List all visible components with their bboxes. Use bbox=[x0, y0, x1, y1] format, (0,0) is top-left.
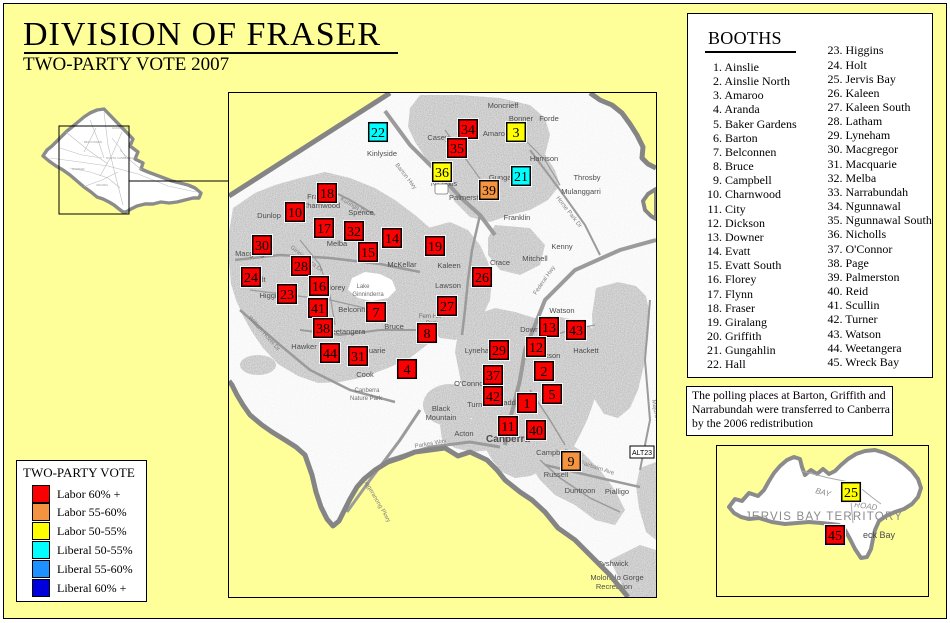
svg-text:40: 40 bbox=[529, 424, 543, 439]
svg-text:Casey: Casey bbox=[427, 133, 449, 142]
svg-text:13: 13 bbox=[542, 321, 556, 336]
svg-text:Mulanggarri: Mulanggarri bbox=[561, 187, 601, 196]
svg-text:Harrison: Harrison bbox=[530, 154, 558, 163]
svg-text:21: 21 bbox=[514, 170, 528, 185]
svg-text:35: 35 bbox=[450, 142, 464, 157]
svg-text:37: 37 bbox=[486, 369, 500, 384]
svg-text:25: 25 bbox=[844, 486, 858, 501]
svg-text:eck Bay: eck Bay bbox=[863, 530, 896, 540]
svg-text:Forde: Forde bbox=[539, 114, 559, 123]
svg-text:Franklin: Franklin bbox=[504, 213, 531, 222]
svg-text:32: 32 bbox=[347, 225, 361, 240]
svg-text:26: 26 bbox=[475, 271, 489, 286]
svg-text:9: 9 bbox=[568, 455, 575, 470]
svg-text:11: 11 bbox=[501, 420, 514, 435]
svg-text:Moncrieff: Moncrieff bbox=[488, 101, 520, 110]
svg-text:10: 10 bbox=[288, 206, 302, 221]
svg-text:Nature Park: Nature Park bbox=[350, 396, 383, 402]
svg-text:Canberra: Canberra bbox=[354, 388, 380, 394]
svg-text:Ginninderra: Ginninderra bbox=[352, 292, 384, 298]
svg-text:24: 24 bbox=[244, 271, 258, 286]
svg-text:Pialligo: Pialligo bbox=[605, 487, 629, 496]
svg-text:41: 41 bbox=[311, 302, 325, 317]
svg-text:16: 16 bbox=[312, 280, 326, 295]
svg-text:HAWKER: HAWKER bbox=[72, 167, 85, 171]
svg-text:ARANDA: ARANDA bbox=[96, 183, 108, 187]
svg-text:Mountain: Mountain bbox=[426, 413, 457, 422]
svg-text:Kenny: Kenny bbox=[551, 242, 573, 251]
svg-text:27: 27 bbox=[440, 300, 454, 315]
svg-text:22: 22 bbox=[371, 126, 385, 141]
svg-text:29: 29 bbox=[492, 344, 506, 359]
svg-text:Acton: Acton bbox=[454, 429, 473, 438]
svg-text:ALT23: ALT23 bbox=[632, 450, 652, 457]
svg-text:4: 4 bbox=[404, 363, 411, 378]
svg-text:McKellar: McKellar bbox=[387, 260, 417, 269]
svg-text:5: 5 bbox=[549, 388, 556, 403]
svg-text:Bruce: Bruce bbox=[384, 322, 404, 331]
svg-text:15: 15 bbox=[361, 246, 375, 261]
svg-text:39: 39 bbox=[482, 184, 496, 199]
svg-text:1: 1 bbox=[524, 397, 531, 412]
svg-text:Lake: Lake bbox=[356, 284, 370, 290]
svg-text:45: 45 bbox=[828, 529, 842, 544]
svg-text:GUNGAHLIN: GUNGAHLIN bbox=[112, 126, 129, 130]
svg-text:Dunlop: Dunlop bbox=[257, 211, 281, 220]
svg-text:Cook: Cook bbox=[356, 370, 374, 379]
svg-text:2: 2 bbox=[541, 365, 548, 380]
svg-text:36: 36 bbox=[435, 166, 449, 181]
svg-text:Lawson: Lawson bbox=[435, 281, 461, 290]
svg-text:38: 38 bbox=[316, 322, 330, 337]
svg-text:42: 42 bbox=[486, 390, 500, 405]
svg-text:Hawker: Hawker bbox=[291, 342, 317, 351]
svg-text:34: 34 bbox=[461, 123, 475, 138]
svg-text:Duntroon: Duntroon bbox=[565, 486, 596, 495]
svg-text:Hackett: Hackett bbox=[573, 346, 599, 355]
svg-text:Kinlyside: Kinlyside bbox=[367, 149, 397, 158]
svg-text:JERVIS BAY TERRITORY: JERVIS BAY TERRITORY bbox=[745, 511, 903, 523]
svg-text:Black: Black bbox=[432, 404, 451, 413]
svg-text:28: 28 bbox=[294, 260, 308, 275]
svg-text:Throsby: Throsby bbox=[573, 173, 600, 182]
svg-text:31: 31 bbox=[351, 350, 365, 365]
svg-text:14: 14 bbox=[385, 232, 399, 247]
svg-text:43: 43 bbox=[569, 324, 583, 339]
svg-text:7: 7 bbox=[373, 306, 380, 321]
svg-text:Watson: Watson bbox=[549, 306, 574, 315]
svg-text:BELCONNEN: BELCONNEN bbox=[84, 140, 102, 144]
svg-text:12: 12 bbox=[529, 341, 543, 356]
svg-text:30: 30 bbox=[255, 239, 269, 254]
svg-text:18: 18 bbox=[320, 187, 334, 202]
svg-text:Kaleen: Kaleen bbox=[437, 261, 460, 270]
svg-text:44: 44 bbox=[323, 347, 337, 362]
svg-text:3: 3 bbox=[513, 126, 520, 141]
svg-text:8: 8 bbox=[424, 327, 431, 342]
svg-text:Mitchell: Mitchell bbox=[522, 254, 548, 263]
svg-text:19: 19 bbox=[428, 240, 442, 255]
svg-text:Crace: Crace bbox=[490, 258, 510, 267]
svg-text:23: 23 bbox=[280, 288, 294, 303]
svg-text:O'Connor: O'Connor bbox=[454, 379, 486, 388]
svg-text:17: 17 bbox=[317, 222, 331, 237]
